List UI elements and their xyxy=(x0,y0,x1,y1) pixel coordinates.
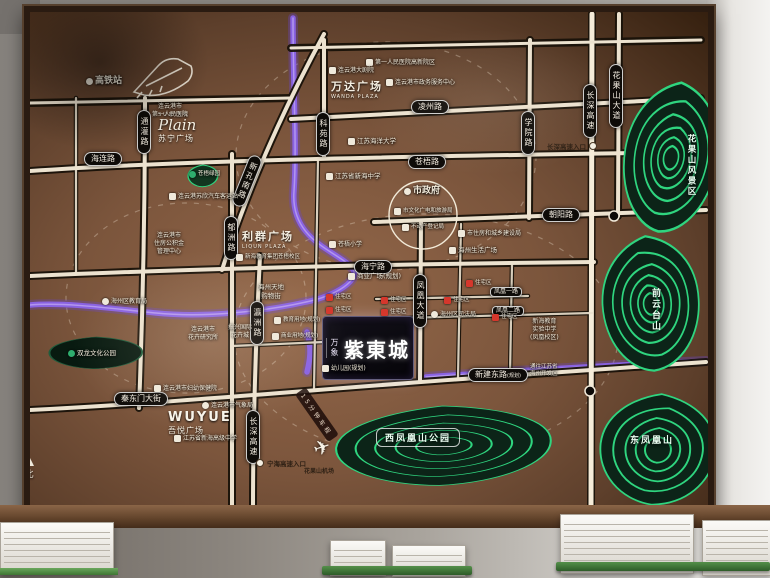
label-huaguoshan-scenic: 花果山风景区 xyxy=(685,134,697,197)
gov-icon xyxy=(394,208,401,215)
gov-icon xyxy=(202,402,209,409)
residential-icon xyxy=(444,297,451,304)
building-model xyxy=(0,522,114,574)
school-icon xyxy=(326,173,333,180)
road-label-yingzhou: 瀛洲路 xyxy=(250,301,264,345)
model-lawn xyxy=(0,568,118,575)
residential-icon xyxy=(492,314,499,321)
shop-icon xyxy=(348,273,355,280)
road-label-huaguoshan-ave: 花果山大道 xyxy=(609,64,623,128)
poi-construction-bureau: 市住房和城乡建设局 xyxy=(458,230,521,238)
poi-flower-institute: 连云港市 花卉研究所 xyxy=(188,326,218,342)
project-brand: 万象 xyxy=(326,338,340,358)
project-name: 紫東城 xyxy=(344,334,410,363)
poi-residential: 住宅区 xyxy=(466,280,492,287)
liqun-plaza-logo: 利群广场 LIQUN PLAZA xyxy=(242,228,294,250)
entrance-changshen: 长深高速入口 xyxy=(547,141,597,151)
road-label-qindongmen: 秦东门大街 xyxy=(114,392,168,406)
poi-residential: 住宅区 xyxy=(326,307,352,314)
road-label-fenghuang-ave: 凤凰大道 xyxy=(413,274,427,328)
wanda-plaza-logo: 万达广场 WANDA PLAZA xyxy=(331,78,383,100)
land-icon xyxy=(274,317,281,324)
model-hedge xyxy=(556,562,770,571)
poi-residential: 住宅区 xyxy=(381,297,407,304)
poi-first-hospital: 连云港市 第一人民医院 xyxy=(152,103,188,119)
label-xifenghuang-park: 西凤凰山公园 xyxy=(376,428,460,447)
poi-maternity-hospital: 连云港市妇幼保健院 xyxy=(154,385,217,393)
hospital-icon xyxy=(154,385,161,392)
poi-residential: 住宅区 xyxy=(444,297,470,304)
poi-justice-bureau: 海州区司法局 xyxy=(431,311,476,319)
compass-north: 北 xyxy=(24,456,34,480)
poi-education-bureau: 海州区教育局 xyxy=(102,298,147,306)
road-label-xinjiandong: 新建东路(规划) xyxy=(468,368,528,382)
poi-xinhai-senior-school: 江苏省新海高级中学 xyxy=(174,435,237,443)
road-label-xueyuan: 学院路 xyxy=(521,111,535,155)
road-label-changshen: 长深高速 xyxy=(583,84,597,138)
poi-kindergarten: 幼儿园(规划) xyxy=(322,365,366,373)
road-label-chaoyang: 朝阳路 xyxy=(542,208,580,222)
poi-hsr-station: 高铁站 xyxy=(86,76,122,88)
theater-icon xyxy=(329,67,336,74)
location-map-board: ✈ 万象 紫東城 凌州路 海连路 苍梧路 朝阳路 海宁路 秦东门大街 新建东路(… xyxy=(24,6,714,518)
poi-business-land: 商业用地(规划) xyxy=(272,333,318,340)
poi-life-plaza: 海州生活广场 xyxy=(449,246,497,254)
hospital-icon xyxy=(366,59,373,66)
gov-icon xyxy=(102,298,109,305)
gov-icon xyxy=(431,311,438,318)
bus-icon xyxy=(169,193,176,200)
poi-grand-theater: 连云港大剧院 xyxy=(329,67,374,75)
poi-xinhai-middle-school: 江苏省新海中学 xyxy=(326,172,381,180)
poi-to-development-zone: 通往江苏省 海州开发区 xyxy=(530,364,558,379)
north-arrow-icon xyxy=(24,456,34,466)
poi-city-hall: 市政府 xyxy=(404,186,440,198)
station-icon xyxy=(86,78,93,85)
poi-commercial-plaza: 商业广场(规划) xyxy=(348,272,401,280)
residential-icon xyxy=(466,280,473,287)
school-icon xyxy=(236,254,243,261)
label-qianyuntai: 前云台山 xyxy=(649,288,662,332)
poi-bus-station: 连云港苏欣汽车客运站 xyxy=(169,193,238,201)
poi-wenhua-park: 双龙文化公园 xyxy=(68,349,116,357)
label-dongfenghuang: 东凤凰山 xyxy=(630,433,674,446)
entrance-marker-icon xyxy=(256,459,264,467)
poi-first-hospital-gaoxin: 第一人民医院高新院区 xyxy=(366,59,435,67)
land-icon xyxy=(272,333,279,340)
poi-education-land: 教育用地(规划) xyxy=(274,317,320,324)
poi-zhenxing-flower-city: 振兴国际 花卉城 xyxy=(228,324,252,340)
road-label-changshen-south: 长深高速 xyxy=(246,410,260,464)
map-labels: 万象 紫東城 凌州路 海连路 苍梧路 朝阳路 海宁路 秦东门大街 新建东路(规划… xyxy=(24,6,714,518)
entrance-ninghai: 宁海高速入口 xyxy=(256,458,306,468)
wuyue-plaza-logo: WUYUE 吾悦广场 xyxy=(168,410,232,436)
school-icon xyxy=(329,241,336,248)
poi-airport: 花果山机场 xyxy=(304,466,334,475)
residential-icon xyxy=(381,297,388,304)
road-label-cangwu: 苍梧路 xyxy=(408,155,446,169)
poi-service-center: 连云港市政务服务中心 xyxy=(386,79,455,87)
poi-housing-fund-center: 连云港市 住房公积金 管理中心 xyxy=(154,232,184,256)
road-label-lingzhou: 凌州路 xyxy=(411,100,449,114)
park-icon xyxy=(189,171,196,178)
drive-time-ring-label: 15分钟车程 xyxy=(295,387,339,442)
gov-icon xyxy=(404,188,411,195)
road-label-hailian: 海连路 xyxy=(84,152,122,166)
park-icon xyxy=(68,350,75,357)
poi-real-estate-registry: 不动产登记局 xyxy=(402,224,444,231)
residential-icon xyxy=(381,309,388,316)
cart-icon xyxy=(449,247,456,254)
gov-icon xyxy=(402,224,409,231)
poi-weather-bureau: 连云港市气象局 xyxy=(202,402,253,410)
wall-right xyxy=(706,0,770,578)
residential-icon xyxy=(326,294,333,301)
road-label-tongguan: 通灌路 xyxy=(137,110,151,154)
poi-culture-bureau: 市文化广电和旅游局 xyxy=(394,208,453,215)
poi-tiandi-mall: 海州天地 购物街 xyxy=(258,283,284,301)
school-icon xyxy=(348,138,355,145)
sales-office-map-photo: ✈ 万象 紫東城 凌州路 海连路 苍梧路 朝阳路 海宁路 秦东门大街 新建东路(… xyxy=(0,0,770,578)
poi-residential: 住宅区 xyxy=(326,294,352,301)
school-icon xyxy=(174,435,181,442)
gov-icon xyxy=(386,79,393,86)
model-hedge xyxy=(322,566,472,575)
road-label-fenghuang-1: 凤凰一路 xyxy=(490,287,522,297)
gov-icon xyxy=(458,230,465,237)
poi-cangwu-green-park: 苍梧绿园 xyxy=(189,171,220,178)
poi-xinhai-group-campus: 新海教育集团苍梧校区 xyxy=(236,254,300,261)
road-label-keyuan: 科苑路 xyxy=(316,112,330,156)
entrance-marker-icon xyxy=(589,142,597,150)
residential-icon xyxy=(326,307,333,314)
poi-ocean-university: 江苏海洋大学 xyxy=(348,137,396,145)
poi-residential: 住宅区 xyxy=(381,309,407,316)
poi-xinhai-fenghuang-campus: 新海教育 实验中学 (凤凰校区) xyxy=(530,318,559,342)
kindergarten-icon xyxy=(322,365,329,372)
poi-residential: 住宅区 xyxy=(492,314,518,321)
poi-cangwu-primary: 苍梧小学 xyxy=(329,241,362,249)
